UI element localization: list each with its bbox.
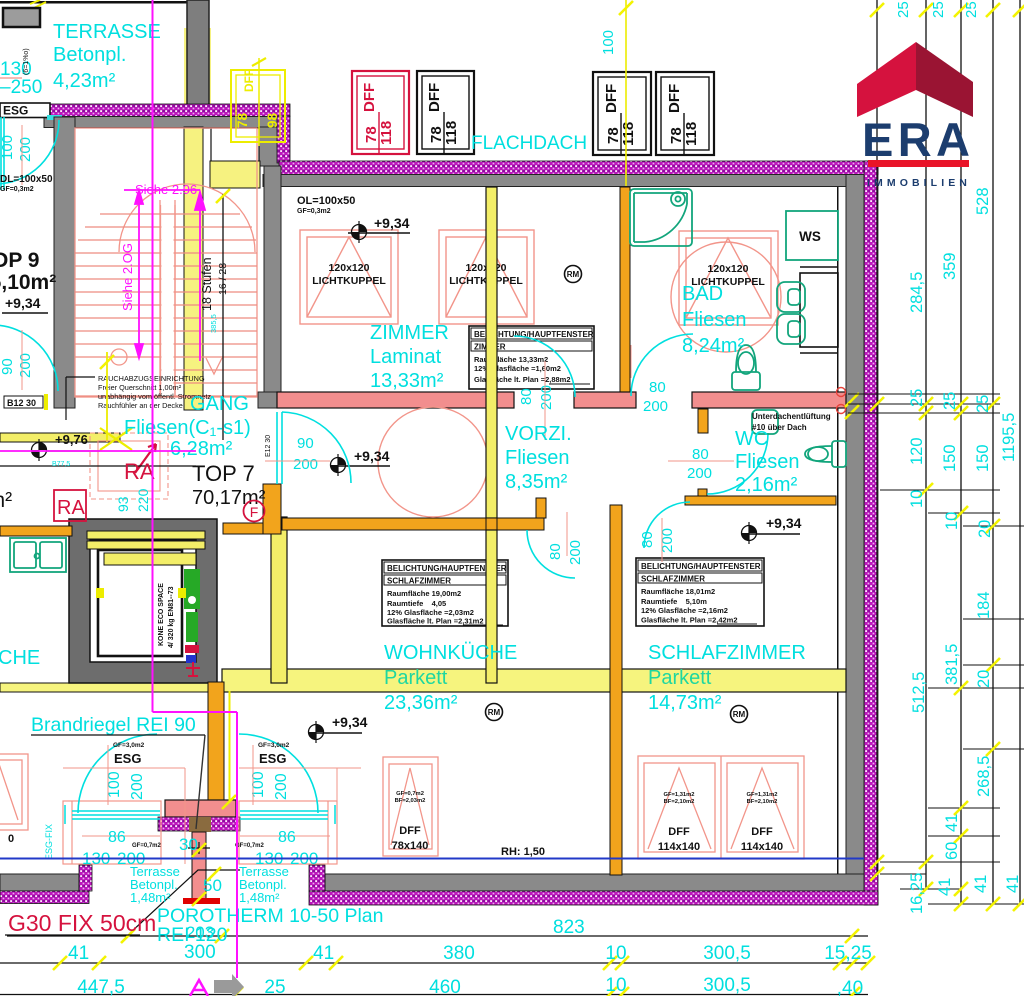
svg-text:2,16m²: 2,16m² bbox=[735, 474, 798, 496]
svg-text:SCHLAFZIMMER: SCHLAFZIMMER bbox=[648, 642, 806, 664]
svg-text:4/ 320 kg EN81--73: 4/ 320 kg EN81--73 bbox=[168, 586, 175, 648]
svg-text:+9,34: +9,34 bbox=[5, 295, 41, 311]
svg-text:118: 118 bbox=[683, 122, 700, 146]
svg-text:BAD: BAD bbox=[682, 283, 723, 305]
svg-text:25: 25 bbox=[941, 392, 959, 410]
svg-text:8,35m²: 8,35m² bbox=[505, 471, 568, 493]
svg-text:381,5: 381,5 bbox=[943, 644, 961, 685]
svg-text:+9,34: +9,34 bbox=[332, 714, 368, 730]
svg-text:90: 90 bbox=[297, 435, 314, 452]
svg-text:120x120: 120x120 bbox=[329, 262, 370, 274]
svg-text:Fliesen: Fliesen bbox=[682, 309, 746, 331]
svg-text:WOHNKÜCHE: WOHNKÜCHE bbox=[384, 642, 517, 664]
svg-text:118: 118 bbox=[620, 122, 637, 146]
svg-text:268,5: 268,5 bbox=[975, 756, 993, 797]
svg-text:DL=100x50: DL=100x50 bbox=[0, 174, 53, 185]
svg-text:DFF: DFF bbox=[399, 825, 421, 837]
svg-text:ESG: ESG bbox=[114, 751, 141, 766]
svg-text:Raumfläche 13,33m2: Raumfläche 13,33m2 bbox=[474, 355, 548, 364]
svg-text:Glasfläche lt. Plan =2,31m2: Glasfläche lt. Plan =2,31m2 bbox=[387, 617, 484, 626]
svg-text:4,23m²: 4,23m² bbox=[53, 70, 116, 92]
svg-text:16,25: 16,25 bbox=[908, 873, 926, 914]
svg-text:OP 9: OP 9 bbox=[0, 249, 39, 272]
svg-text:93: 93 bbox=[115, 496, 131, 512]
svg-text:Glasfläche lt. Plan =2,42m2: Glasfläche lt. Plan =2,42m2 bbox=[641, 616, 738, 625]
svg-text:359: 359 bbox=[941, 252, 959, 280]
svg-text:80: 80 bbox=[518, 388, 535, 405]
svg-text:IMMOBILIEN: IMMOBILIEN bbox=[867, 177, 971, 189]
svg-text:DFF: DFF bbox=[603, 84, 620, 113]
svg-text:DFF: DFF bbox=[666, 84, 683, 113]
svg-text:RH: 1,50: RH: 1,50 bbox=[501, 846, 545, 858]
svg-text:150: 150 bbox=[974, 444, 992, 472]
svg-text:+9,76: +9,76 bbox=[55, 432, 88, 447]
svg-text:VORZI.: VORZI. bbox=[505, 423, 572, 445]
svg-text:80: 80 bbox=[547, 543, 564, 560]
svg-text:RA: RA bbox=[124, 459, 155, 484]
svg-text:184: 184 bbox=[975, 591, 993, 619]
svg-text:KONE ECO SPACE: KONE ECO SPACE bbox=[158, 583, 165, 646]
svg-text:41: 41 bbox=[972, 875, 990, 893]
svg-text:WS: WS bbox=[799, 229, 821, 244]
svg-text:380: 380 bbox=[443, 943, 475, 964]
svg-text:200: 200 bbox=[273, 773, 290, 800]
svg-text:200: 200 bbox=[538, 385, 555, 410]
svg-text:GF=0,3m2: GF=0,3m2 bbox=[297, 208, 331, 215]
svg-text:B77,5: B77,5 bbox=[52, 461, 70, 468]
svg-text:300,5: 300,5 bbox=[703, 943, 751, 964]
svg-text:GF=0,7m2: GF=0,7m2 bbox=[396, 791, 424, 797]
svg-text:DFF: DFF bbox=[668, 826, 690, 838]
svg-text:B12 30: B12 30 bbox=[7, 398, 36, 408]
svg-text:86: 86 bbox=[278, 829, 296, 846]
svg-text:Fliesen(C₁-s1): Fliesen(C₁-s1) bbox=[124, 417, 251, 439]
svg-text:114x140: 114x140 bbox=[741, 841, 783, 853]
svg-text:10: 10 bbox=[605, 943, 626, 964]
svg-text:25: 25 bbox=[930, 1, 947, 18]
svg-text:385,5: 385,5 bbox=[209, 314, 218, 333]
svg-text:DFF: DFF bbox=[242, 69, 256, 92]
svg-text:ESG: ESG bbox=[3, 104, 28, 118]
svg-text:1,48m²: 1,48m² bbox=[130, 890, 171, 905]
svg-text:Raumfläche 19,00m2: Raumfläche 19,00m2 bbox=[387, 589, 461, 598]
svg-text:DFF: DFF bbox=[361, 83, 378, 112]
svg-text:ESG-FIX: ESG-FIX bbox=[44, 824, 54, 860]
svg-text:41: 41 bbox=[1004, 875, 1022, 893]
svg-text:118: 118 bbox=[378, 121, 395, 145]
svg-text:41: 41 bbox=[936, 878, 954, 896]
svg-text:41: 41 bbox=[943, 814, 961, 832]
svg-text:Siehe 2.96: Siehe 2.96 bbox=[135, 182, 197, 197]
svg-text:Siehe 2.OG: Siehe 2.OG bbox=[120, 243, 135, 311]
svg-text:BF=2,03m2: BF=2,03m2 bbox=[395, 798, 426, 804]
svg-text:Laminat: Laminat bbox=[370, 346, 442, 368]
svg-text:460: 460 bbox=[429, 977, 461, 996]
svg-text:120: 120 bbox=[908, 437, 926, 465]
svg-text:BF=2,10m2: BF=2,10m2 bbox=[664, 799, 695, 805]
svg-text:GF=0,7m2: GF=0,7m2 bbox=[235, 843, 265, 849]
svg-text:Raumtiefe 5,10m: Raumtiefe 5,10m bbox=[641, 597, 707, 606]
svg-text:100: 100 bbox=[0, 135, 16, 160]
svg-text:78x140: 78x140 bbox=[392, 840, 429, 852]
svg-text:GF=0,3m2: GF=0,3m2 bbox=[0, 186, 34, 193]
svg-text:80: 80 bbox=[692, 446, 709, 463]
svg-text:6m²: 6m² bbox=[0, 489, 12, 512]
svg-text:200: 200 bbox=[129, 773, 146, 800]
svg-text:E12 30: E12 30 bbox=[265, 435, 272, 457]
svg-text:+9,34: +9,34 bbox=[354, 448, 390, 464]
svg-text:284,5: 284,5 bbox=[908, 272, 926, 313]
svg-text:6,28m²: 6,28m² bbox=[170, 438, 233, 460]
svg-text:Betonpl.: Betonpl. bbox=[53, 44, 126, 66]
svg-text:80: 80 bbox=[649, 379, 666, 396]
svg-text:Raumtiefe 4,05: Raumtiefe 4,05 bbox=[387, 599, 446, 608]
svg-text:200: 200 bbox=[293, 456, 318, 473]
svg-text:120x120: 120x120 bbox=[708, 263, 749, 275]
svg-text:Fliesen: Fliesen bbox=[735, 451, 799, 473]
svg-text:BELICHTUNG/HAUPTFENSTER: BELICHTUNG/HAUPTFENSTER bbox=[641, 562, 761, 571]
svg-text:Unterdachentlüftung: Unterdachentlüftung bbox=[752, 412, 831, 421]
svg-text:1,48m²: 1,48m² bbox=[239, 890, 280, 905]
svg-text:528: 528 bbox=[974, 187, 992, 215]
svg-text:OL=100x50: OL=100x50 bbox=[297, 195, 355, 207]
svg-text:(6=1%o): (6=1%o) bbox=[23, 48, 30, 75]
svg-text:78: 78 bbox=[235, 112, 250, 128]
svg-text:GF=1,31m2: GF=1,31m2 bbox=[663, 792, 694, 798]
svg-text:+9,34: +9,34 bbox=[766, 515, 802, 531]
svg-text:TOP 7: TOP 7 bbox=[192, 461, 255, 486]
svg-text:512,5: 512,5 bbox=[910, 672, 928, 713]
svg-text:100: 100 bbox=[106, 771, 123, 798]
svg-text:ZIMMER: ZIMMER bbox=[370, 322, 449, 344]
svg-text:10: 10 bbox=[943, 512, 961, 530]
svg-text:SCHLAFZIMMER: SCHLAFZIMMER bbox=[641, 575, 705, 584]
svg-text:G30 FIX 50cm: G30 FIX 50cm bbox=[8, 910, 156, 936]
svg-text:FLACHDACH: FLACHDACH bbox=[471, 133, 587, 154]
svg-text:80: 80 bbox=[639, 531, 656, 548]
svg-text:GF=3,0m2: GF=3,0m2 bbox=[113, 742, 145, 749]
svg-text:90: 90 bbox=[0, 358, 16, 375]
svg-text:25: 25 bbox=[264, 977, 285, 996]
svg-text:114x140: 114x140 bbox=[658, 841, 700, 853]
svg-text:RA: RA bbox=[57, 497, 85, 519]
svg-text:98: 98 bbox=[265, 112, 280, 128]
svg-text:Parkett: Parkett bbox=[384, 667, 448, 689]
svg-text:10: 10 bbox=[908, 490, 926, 508]
svg-text:220: 220 bbox=[135, 488, 151, 512]
svg-text:30: 30 bbox=[179, 835, 198, 854]
svg-text:150: 150 bbox=[941, 444, 959, 472]
svg-text:200: 200 bbox=[567, 540, 584, 565]
svg-text:200: 200 bbox=[643, 398, 668, 415]
svg-text:REI 120: REI 120 bbox=[157, 924, 228, 946]
svg-text:200: 200 bbox=[17, 353, 34, 378]
svg-text:200: 200 bbox=[687, 465, 712, 482]
svg-text:20: 20 bbox=[976, 520, 994, 538]
svg-text:Brandriegel REI 90: Brandriegel REI 90 bbox=[31, 714, 196, 736]
svg-text:60: 60 bbox=[943, 842, 961, 860]
svg-text:300,5: 300,5 bbox=[703, 975, 751, 996]
svg-text:Fliesen: Fliesen bbox=[505, 447, 569, 469]
svg-text:18 Stufen: 18 Stufen bbox=[200, 257, 214, 311]
svg-text:+9,34: +9,34 bbox=[374, 215, 410, 231]
svg-text:25: 25 bbox=[908, 389, 926, 407]
svg-text:200: 200 bbox=[17, 137, 34, 162]
svg-text:ERA: ERA bbox=[862, 113, 970, 166]
svg-text:Rauchfühler an der Decke: Rauchfühler an der Decke bbox=[98, 401, 183, 410]
svg-text:25: 25 bbox=[895, 1, 912, 18]
svg-text:SCHLAFZIMMER: SCHLAFZIMMER bbox=[387, 577, 451, 586]
svg-text:86: 86 bbox=[108, 829, 126, 846]
svg-text:100: 100 bbox=[600, 30, 617, 55]
svg-text:41: 41 bbox=[313, 943, 334, 964]
svg-text:823: 823 bbox=[553, 917, 585, 938]
svg-text:25: 25 bbox=[963, 1, 980, 18]
svg-text:,40: ,40 bbox=[837, 978, 863, 996]
svg-text:20: 20 bbox=[975, 670, 993, 688]
svg-text:TERRASSE: TERRASSE bbox=[53, 21, 161, 43]
svg-text:0: 0 bbox=[8, 833, 14, 845]
svg-text:GF=0,7m2: GF=0,7m2 bbox=[132, 843, 162, 849]
svg-text:BF=2,10m2: BF=2,10m2 bbox=[747, 799, 778, 805]
svg-text:Freier Querschnitt 1,00m²: Freier Querschnitt 1,00m² bbox=[98, 383, 182, 392]
svg-text:RAUCHABZUGSEINRICHTUNG: RAUCHABZUGSEINRICHTUNG bbox=[98, 374, 205, 383]
svg-text:25: 25 bbox=[974, 395, 992, 413]
svg-text:WC: WC bbox=[735, 428, 768, 450]
svg-text:13,33m²: 13,33m² bbox=[370, 370, 444, 392]
svg-text:16 / 28: 16 / 28 bbox=[217, 263, 229, 295]
svg-text:447,5: 447,5 bbox=[77, 977, 125, 996]
svg-text:8,24m²: 8,24m² bbox=[682, 335, 745, 357]
svg-text:41: 41 bbox=[68, 943, 89, 964]
svg-text:10: 10 bbox=[605, 975, 626, 996]
svg-text:15,25: 15,25 bbox=[824, 943, 872, 964]
svg-text:ESG: ESG bbox=[259, 751, 286, 766]
svg-text:12% Glasfläche =2,16m2: 12% Glasfläche =2,16m2 bbox=[641, 606, 728, 615]
svg-text:GANG: GANG bbox=[190, 393, 249, 415]
svg-text:F: F bbox=[250, 504, 259, 520]
svg-text:–250: –250 bbox=[0, 77, 42, 98]
svg-text:1195,5: 1195,5 bbox=[1000, 413, 1018, 462]
svg-text:23,36m²: 23,36m² bbox=[384, 692, 458, 714]
svg-text:Raumfläche 18,01m2: Raumfläche 18,01m2 bbox=[641, 587, 715, 596]
svg-text:LICHTKUPPEL: LICHTKUPPEL bbox=[312, 275, 386, 287]
svg-text:DFF: DFF bbox=[751, 826, 773, 838]
svg-text:14,73m²: 14,73m² bbox=[648, 692, 722, 714]
svg-text:CHE: CHE bbox=[0, 647, 40, 669]
svg-text:118: 118 bbox=[443, 121, 460, 145]
svg-text:GF=3,0m2: GF=3,0m2 bbox=[258, 742, 290, 749]
svg-text:Parkett: Parkett bbox=[648, 667, 712, 689]
svg-text:DFF: DFF bbox=[426, 83, 443, 112]
svg-text:45,10m²: 45,10m² bbox=[0, 271, 56, 294]
svg-text:GF=1,31m2: GF=1,31m2 bbox=[746, 792, 777, 798]
